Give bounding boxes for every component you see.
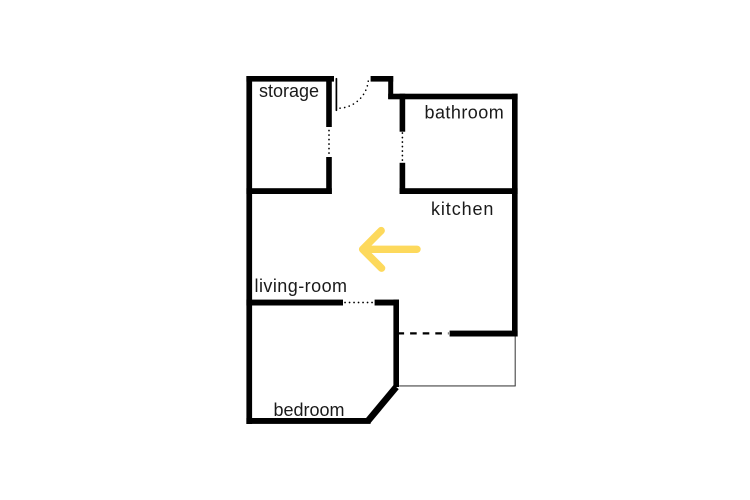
svg-text:living-room: living-room bbox=[255, 276, 348, 296]
svg-text:kitchen: kitchen bbox=[431, 199, 494, 219]
svg-text:bedroom: bedroom bbox=[274, 400, 345, 420]
svg-text:storage: storage bbox=[259, 81, 319, 101]
svg-text:bathroom: bathroom bbox=[425, 103, 505, 123]
